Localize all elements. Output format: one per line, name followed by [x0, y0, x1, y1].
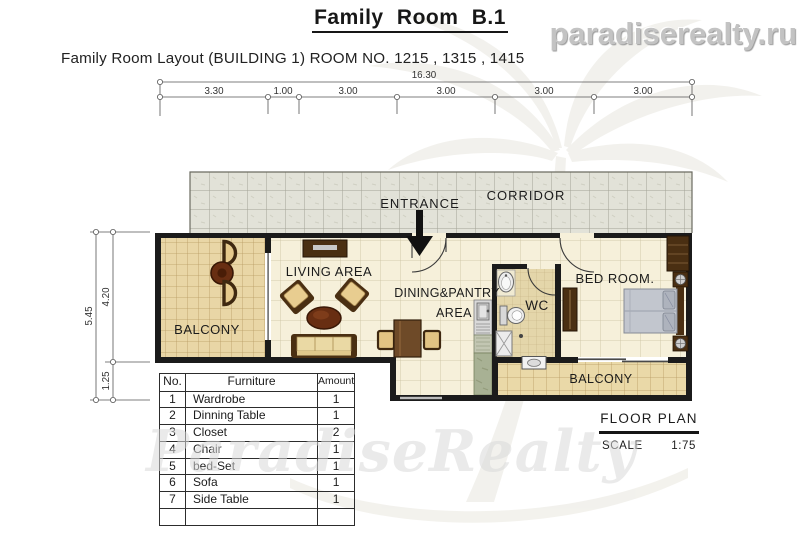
table-cell [186, 509, 318, 526]
table-cell: 2 [160, 408, 186, 425]
dim-seg-5: 3.00 [534, 86, 554, 97]
site-url-watermark: paradiserealty.ru [549, 16, 797, 52]
dining-chair-left [378, 331, 394, 349]
wc-label: WC [525, 298, 549, 313]
table-cell: 6 [160, 475, 186, 492]
table-cell: 1 [318, 391, 355, 408]
table-row: 4Chair1 [160, 441, 355, 458]
table-cell: 1 [318, 492, 355, 509]
table-cell: Chair [186, 441, 318, 458]
table-cell: Sofa [186, 475, 318, 492]
floorplan-name: FLOOR PLAN [599, 411, 699, 426]
balcony-right-label: BALCONY [569, 372, 632, 386]
scale-value: 1:75 [671, 440, 696, 452]
left-dimensions [90, 229, 150, 402]
corridor-label: CORRIDOR [487, 188, 566, 203]
table-cell: 2 [318, 425, 355, 442]
scale-row: SCALE 1:75 [599, 440, 699, 452]
furniture-table: No. Furniture Amount 1Wardrobe12Dinning … [159, 373, 355, 526]
balcony-chair-2 [224, 282, 236, 305]
furniture-table-header: No. Furniture Amount [160, 374, 355, 392]
shower-tray [496, 331, 512, 356]
dim-seg-1: 3.30 [204, 86, 224, 97]
balcony-chair-1 [224, 242, 236, 265]
bedroom-sliding-door-b [622, 361, 668, 363]
table-cell: 7 [160, 492, 186, 509]
plan-subtitle: Family Room Layout (BUILDING 1) ROOM NO.… [61, 50, 524, 67]
dim-left-upper: 4.20 [101, 287, 112, 307]
page-title: Family Room B.1 [312, 6, 508, 33]
closet [563, 288, 577, 331]
table-cell: Wardrobe [186, 391, 318, 408]
table-row: 2Dinning Table1 [160, 408, 355, 425]
sofa [291, 334, 357, 358]
tv-cabinet [303, 240, 347, 257]
furniture-table-body: 1Wardrobe12Dinning Table13Closet24Chair1… [160, 391, 355, 525]
coffee-table [307, 307, 341, 329]
table-cell: Closet [186, 425, 318, 442]
dim-left-lower: 1.25 [101, 371, 112, 391]
table-cell: 1 [318, 458, 355, 475]
top-dimensions [157, 79, 694, 116]
table-cell: Dinning Table [186, 408, 318, 425]
wardrobe [667, 236, 689, 271]
table-cell: 1 [318, 475, 355, 492]
title-wrap: Family Room B.1 [240, 6, 580, 33]
table-cell: bed-Set [186, 458, 318, 475]
bed [624, 287, 684, 335]
col-header-furniture: Furniture [186, 374, 318, 392]
washing-machine [522, 357, 546, 370]
bedroom-sliding-door-a [578, 358, 626, 360]
title-block: FLOOR PLAN SCALE 1:75 [599, 411, 699, 452]
kitchen-counter [474, 300, 492, 395]
table-row: 3Closet2 [160, 425, 355, 442]
table-row: 7Side Table1 [160, 492, 355, 509]
dining-label-line2: AREA [436, 306, 472, 320]
table-cell: 4 [160, 441, 186, 458]
dim-seg-4: 3.00 [436, 86, 456, 97]
col-header-no: No. [160, 374, 186, 392]
side-table-2 [673, 336, 688, 351]
table-row: 1Wardrobe1 [160, 391, 355, 408]
dim-seg-3: 3.00 [338, 86, 358, 97]
dim-seg-6: 3.00 [633, 86, 653, 97]
table-row: 6Sofa1 [160, 475, 355, 492]
table-cell: Side Table [186, 492, 318, 509]
bedroom-label: BED ROOM. [576, 271, 655, 286]
dim-seg-2: 1.00 [273, 86, 293, 97]
entrance-label: ENTRANCE [380, 196, 460, 211]
bedroom-door-gap-floor [560, 233, 594, 238]
dim-total-top: 16.30 [412, 70, 437, 81]
table-cell: 1 [318, 408, 355, 425]
side-table-1 [673, 272, 688, 287]
dining-window [400, 397, 442, 399]
balcony-glass-door [267, 253, 269, 340]
table-cell: 5 [160, 458, 186, 475]
toilet-tank [500, 306, 507, 325]
table-cell [318, 509, 355, 526]
left-balcony-floor [161, 238, 265, 357]
table-cell: 3 [160, 425, 186, 442]
table-cell: 1 [318, 441, 355, 458]
table-cell [160, 509, 186, 526]
dining-table [394, 320, 421, 357]
floor-plan-drawing: ENTRANCE CORRIDOR LIVING AREA DINING&PAN… [0, 0, 800, 534]
dining-label-line1: DINING&PANTRY [394, 286, 500, 300]
living-area-label: LIVING AREA [286, 264, 372, 279]
titleblock-divider [599, 431, 699, 434]
table-row [160, 509, 355, 526]
col-header-amount: Amount [318, 374, 355, 392]
dining-chair-right [424, 331, 440, 349]
dim-left-total: 5.45 [84, 306, 95, 326]
scale-label: SCALE [602, 440, 643, 452]
table-cell: 1 [160, 391, 186, 408]
table-row: 5bed-Set1 [160, 458, 355, 475]
balcony-left-label: BALCONY [174, 322, 240, 337]
page: { "header": { "title": "Family Room B.1"… [0, 0, 800, 534]
